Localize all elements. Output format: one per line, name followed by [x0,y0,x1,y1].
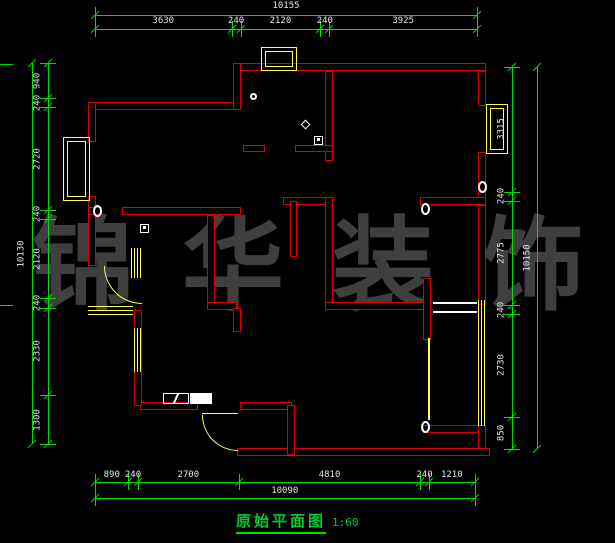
dimension-label: 2720 [34,148,43,170]
dimension-line [537,67,538,449]
extension-line [40,444,56,445]
dimension-line [512,67,513,449]
dimension-label: 3925 [392,17,414,26]
dimension-label: 10130 [18,240,27,267]
dimension-label: 2120 [34,248,43,270]
extension-line [504,67,520,68]
dimension-label: 240 [416,471,432,480]
dimension-label: 240 [498,301,507,317]
extension-line [477,21,478,37]
dimension-label: 890 [104,471,120,480]
dimension-label: 3315 [498,119,507,141]
extension-line [95,490,96,506]
extension-line [40,395,56,396]
dimension-label: 10155 [272,2,299,11]
extension-line [504,417,520,418]
dimension-label: 2775 [498,242,507,264]
dimension-label: 2700 [177,471,199,480]
floorplan-canvas: 锦华装饰 10155363024021202403925890240270048… [0,0,615,543]
dimension-line [48,63,49,444]
extension-line [504,449,520,450]
drawing-title: 原始平面图 [236,512,326,534]
dimension-line [95,29,477,30]
dimension-label: 940 [34,73,43,89]
dimension-label: 3630 [152,17,174,26]
extension-line [95,21,96,37]
dimension-label: 10150 [524,244,533,271]
dimension-label: 2120 [270,17,292,26]
drawing-scale: 1:60 [332,516,359,529]
dimension-label: 2330 [34,340,43,362]
dimension-label: 1210 [441,471,463,480]
extension-line [40,63,56,64]
dimension-label: 240 [317,17,333,26]
dimension-line [95,498,475,499]
extension-line [0,64,13,65]
dimension-label: 240 [498,188,507,204]
dimension-label: 240 [228,17,244,26]
extension-line [475,474,476,490]
dimension-label: 4810 [319,471,341,480]
dimension-label: 850 [498,425,507,441]
dimension-annotations: 1015536302402120240392589024027004810240… [0,0,615,543]
dimension-label: 240 [34,295,43,311]
dimension-label: 1300 [34,409,43,431]
extension-line [0,305,13,306]
title-block: 原始平面图1:60 [236,510,359,531]
dimension-label: 2730 [498,355,507,377]
dimension-label: 240 [34,206,43,222]
extension-line [95,474,96,490]
dimension-label: 10090 [271,487,298,496]
dimension-line [32,63,33,444]
extension-line [475,490,476,506]
extension-line [239,474,240,490]
dimension-label: 240 [34,95,43,111]
dimension-label: 240 [125,471,141,480]
